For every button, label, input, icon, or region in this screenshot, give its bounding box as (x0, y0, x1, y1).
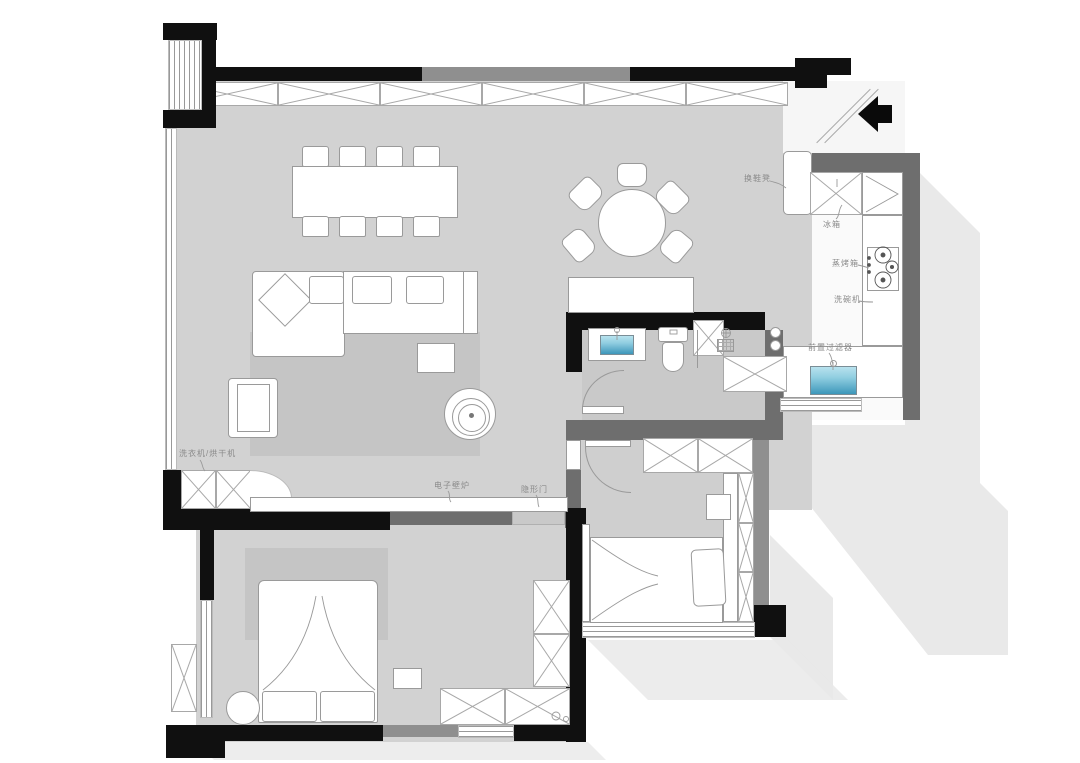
bedroom2-desk (706, 494, 731, 520)
closet-cell (643, 438, 698, 473)
wall-bedroom1-bottom-c (514, 725, 566, 741)
wardrobe-cell (440, 688, 505, 725)
dining-chair (339, 216, 366, 237)
label-shoe-bench: 换鞋凳 (744, 174, 771, 183)
closet-cell (698, 438, 753, 473)
toilet-bowl (662, 342, 684, 372)
wall-bathroom-left (566, 330, 582, 372)
bedroom1-pillow-left (262, 691, 317, 722)
kitchen-sink (810, 366, 857, 395)
dining-chair (376, 216, 403, 237)
sideboard-cabinet-b (723, 356, 787, 392)
window-bedroom1-bottom (458, 725, 514, 738)
dining-chair (413, 146, 440, 167)
shoe-bench (783, 151, 812, 215)
dining-chair (302, 216, 329, 237)
wall-kitchen-right (903, 172, 920, 420)
dining-chair (376, 146, 403, 167)
entry-arrow-tail (877, 105, 892, 123)
shower-drain-grid (717, 339, 734, 352)
wall-bedroom2-right (753, 440, 769, 610)
floor-lamp-inner (458, 404, 486, 432)
floor-plan: 换鞋凳 冰箱 蒸烤箱 洗碗机 前置过滤器 洗衣机/烘干机 电子壁炉 隐形门 (0, 0, 1080, 763)
wall-topleft-bottom (163, 110, 216, 128)
label-pre-filter: 前置过滤器 (808, 343, 853, 352)
bathroom-basin (600, 335, 634, 355)
kitchen-corner-unit (862, 172, 903, 215)
wardrobe-cell (738, 572, 754, 622)
floor-lamp-dot (469, 413, 474, 418)
sofa-pillow (406, 276, 444, 304)
bedroom2-closet-top (643, 438, 753, 473)
wall-bathroom-bottom (566, 420, 783, 440)
cabinet-cell (686, 82, 788, 106)
dryer-cell (216, 470, 251, 509)
water-purifier-b (770, 340, 781, 351)
wardrobe-cell (533, 580, 570, 634)
wardrobe-cell (505, 688, 570, 725)
washer-dryer-cabinets (181, 470, 251, 509)
wall-kitchen-top (812, 153, 920, 172)
cabinet-cell (380, 82, 482, 106)
sliding-door-corridor (566, 440, 581, 470)
bedroom2-wardrobe (738, 473, 754, 622)
sofa-pillow (309, 276, 344, 304)
window-bedroom2-bottom (582, 622, 755, 638)
bedroom2-pillow (691, 548, 727, 607)
window-left-facade (165, 128, 177, 470)
toilet-tank (658, 327, 688, 342)
label-hidden-door: 隐形门 (521, 485, 548, 494)
cabinet-cell (482, 82, 584, 106)
side-table (417, 343, 455, 373)
wall-bedroom1-left (200, 530, 214, 600)
label-dishwasher: 洗碗机 (834, 295, 861, 304)
sideboard-counter (568, 277, 694, 313)
wall-bedroom1-bottom-b (383, 725, 458, 737)
bedroom1-stool (226, 691, 260, 725)
wall-bedroom2-corner (753, 605, 786, 637)
entry-arrow-icon (858, 96, 878, 132)
cabinet-cell (278, 82, 380, 106)
wardrobe-cell (738, 523, 754, 573)
bedroom2-door-leaf (585, 440, 631, 447)
dining-chair (302, 146, 329, 167)
kitchen-window-sill (780, 398, 862, 412)
window-topleft (168, 40, 202, 110)
kitchen-faucet (830, 360, 837, 367)
wall-living-bottom-b (390, 510, 512, 525)
cooktop (867, 247, 899, 291)
top-wall-cabinets (176, 82, 788, 106)
wall-top-a (216, 67, 422, 81)
shower-divider (697, 330, 698, 368)
wall-bedroom1-bottom-a (193, 725, 383, 741)
sofa-pillow (352, 276, 392, 304)
wall-entry-corner-a (795, 58, 851, 75)
bedroom1-pillow-right (320, 691, 375, 722)
balcony-storage (171, 644, 197, 712)
round-dining-table (598, 189, 666, 257)
bedroom1-wardrobe-bottom (440, 688, 570, 725)
fireplace-wall-strip (250, 497, 568, 512)
bedroom2-track (582, 524, 590, 622)
label-fireplace: 电子壁炉 (434, 481, 470, 490)
wardrobe-cell (738, 473, 754, 523)
bedroom1-nightstand (393, 668, 422, 689)
bathroom-door-leaf (582, 406, 624, 414)
bedroom1-wardrobe-right (533, 580, 570, 687)
window-bedroom1-left (200, 600, 213, 718)
dining-chair (413, 216, 440, 237)
washer-cell (181, 470, 216, 509)
wall-entry-corner-b (795, 75, 827, 88)
fridge (810, 172, 862, 215)
round-chair (617, 163, 647, 187)
label-fridge: 冰箱 (823, 220, 841, 229)
water-purifier-a (770, 327, 781, 338)
sofa-armrest (463, 271, 478, 334)
wall-top-window-lintel (422, 67, 630, 81)
wall-corridor (566, 470, 581, 508)
armchair-cushion (237, 384, 270, 432)
wall-top-b (630, 67, 795, 81)
label-steam-oven: 蒸烤箱 (832, 259, 859, 268)
dining-chair (339, 146, 366, 167)
dining-table (292, 166, 458, 218)
cabinet-cell (584, 82, 686, 106)
wardrobe-cell (533, 634, 570, 688)
label-washer-dryer: 洗衣机/烘干机 (179, 449, 236, 458)
